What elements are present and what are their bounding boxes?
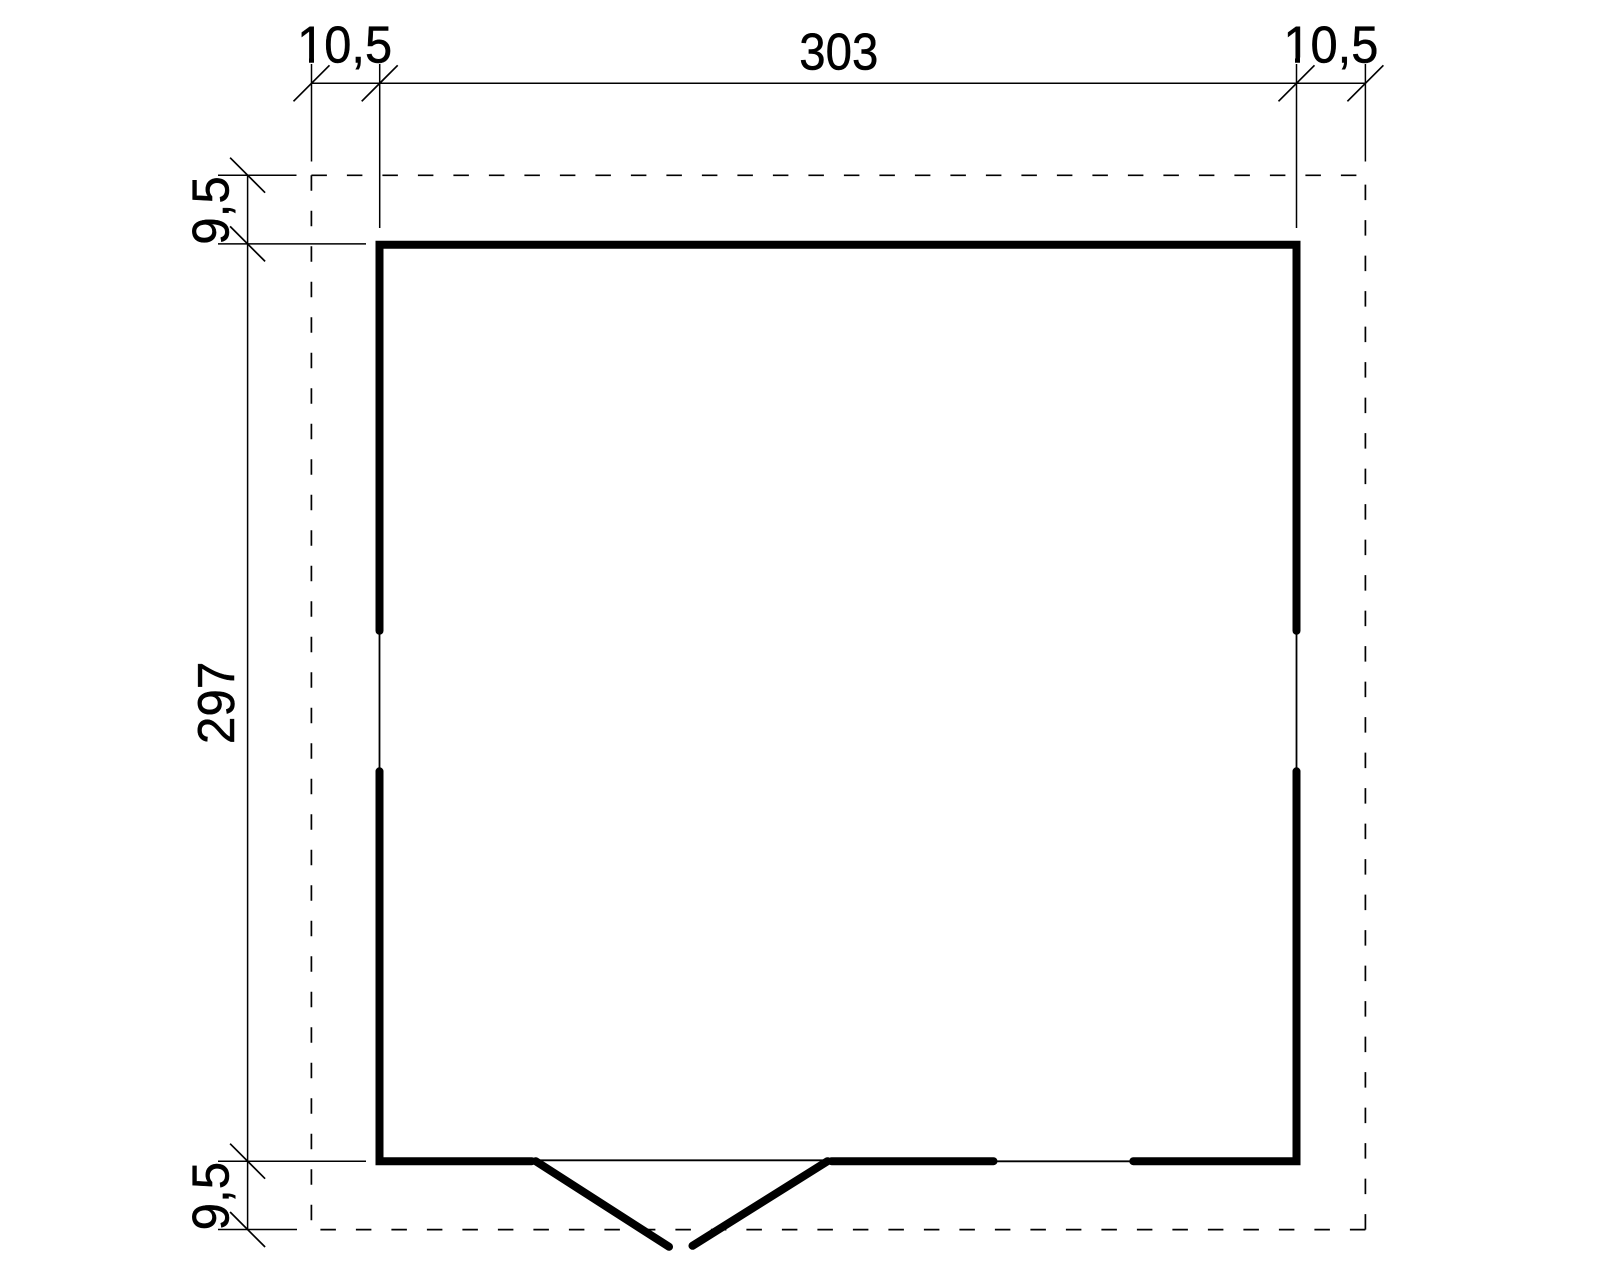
- svg-text:9,5: 9,5: [183, 1162, 241, 1231]
- svg-text:303: 303: [799, 23, 878, 81]
- svg-text:10,5: 10,5: [297, 17, 392, 75]
- svg-text:10,5: 10,5: [1283, 17, 1378, 75]
- svg-text:297: 297: [188, 662, 246, 745]
- svg-text:9,5: 9,5: [183, 176, 241, 245]
